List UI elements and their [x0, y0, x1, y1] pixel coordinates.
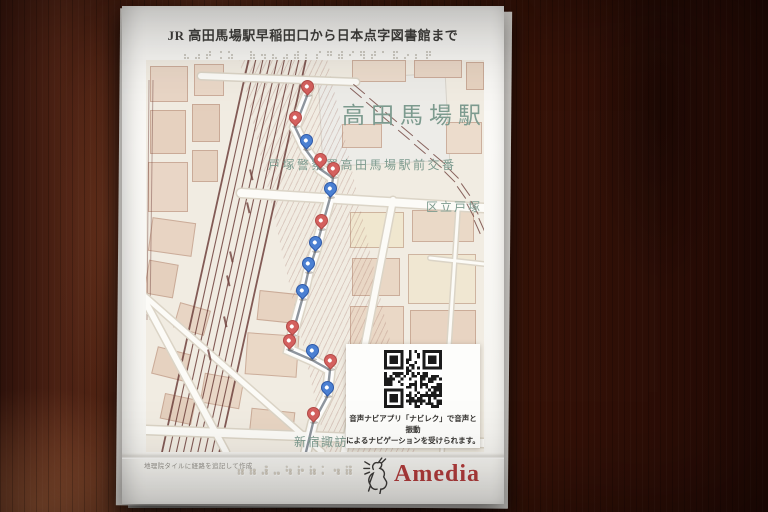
braille-cell [250, 51, 256, 60]
braille-cell [195, 51, 201, 60]
braille-cell [294, 51, 300, 60]
braille-cell [217, 51, 223, 60]
braille-cell [283, 51, 289, 60]
amedia-logo: Amedia [362, 456, 480, 499]
braille-cell [305, 51, 311, 60]
braille-cell [426, 51, 432, 60]
braille-cell [382, 51, 388, 60]
braille-cell [250, 466, 256, 475]
braille-cell [261, 51, 267, 60]
braille-cell [184, 51, 190, 60]
braille-cell [310, 466, 316, 475]
goat-icon [362, 456, 394, 499]
document-title: JR 高田馬場駅早稲田口から日本点字図書館まで [122, 25, 504, 44]
label-ward-totsuka: 区立戸塚 [426, 198, 482, 215]
map-attribution: 地理院タイルに経路を追記して作成 [144, 460, 253, 470]
braille-cell [206, 51, 212, 60]
document-sheet: JR 高田馬場駅早稲田口から日本点字図書館まで 高田馬場駅 戸塚警察署高田馬場駅… [122, 6, 504, 504]
railway-lines [147, 60, 306, 452]
braille-cell [346, 466, 352, 475]
braille-cell [404, 51, 410, 60]
braille-cell [286, 466, 292, 475]
label-shinjuku-suwa: 新宿諏訪 [294, 433, 348, 450]
braille-cell [238, 466, 244, 475]
braille-cell [239, 51, 245, 60]
photo-of-tactile-map-document: JR 高田馬場駅早稲田口から日本点字図書館まで 高田馬場駅 戸塚警察署高田馬場駅… [0, 0, 768, 512]
braille-cell [327, 51, 333, 60]
label-takadanobaba-station: 高田馬場駅 [342, 96, 484, 130]
braille-cell [371, 51, 377, 60]
braille-cell [228, 51, 234, 60]
braille-cell [349, 51, 355, 60]
qr-caption-line1: 音声ナビアプリ「ナビレク」で音声と振動 [346, 413, 480, 435]
qr-code-icon [384, 350, 442, 408]
label-police-box: 戸塚警察署高田馬場駅前交番 [268, 156, 457, 173]
qr-caption-line2: によるナビゲーションを受けられます。 [346, 435, 480, 446]
braille-cell [338, 51, 344, 60]
braille-cell [334, 466, 340, 475]
braille-cell [393, 51, 399, 60]
braille-footer-row [238, 462, 358, 480]
braille-cell [272, 51, 278, 60]
braille-cell [298, 466, 304, 475]
braille-cell [274, 466, 280, 475]
braille-cell [322, 466, 328, 475]
braille-cell [415, 51, 421, 60]
braille-cell [360, 51, 366, 60]
braille-cell [316, 51, 322, 60]
logo-wordmark: Amedia [394, 456, 480, 492]
qr-sticker-panel: 音声ナビアプリ「ナビレク」で音声と振動 によるナビゲーションを受けられます。 [346, 344, 480, 448]
braille-cell [262, 466, 268, 475]
